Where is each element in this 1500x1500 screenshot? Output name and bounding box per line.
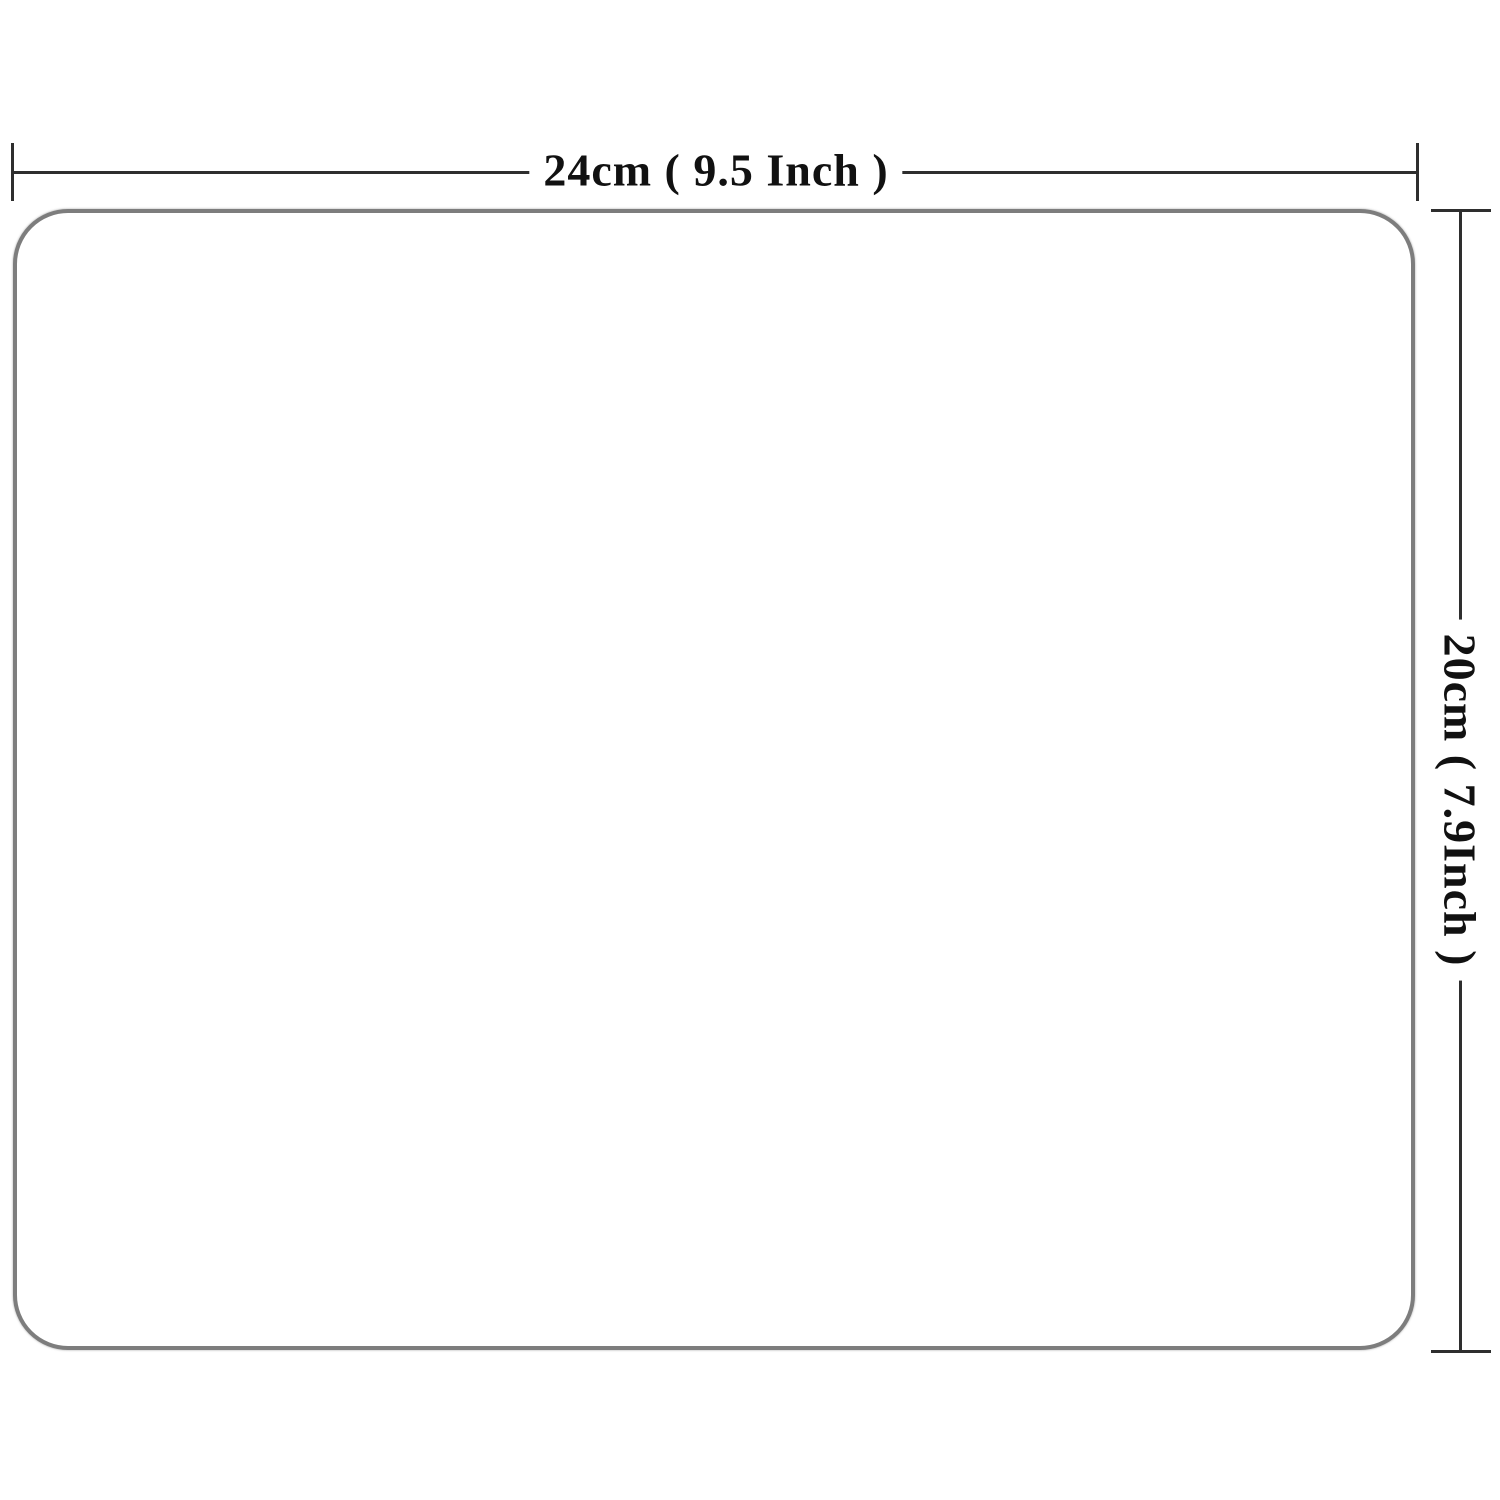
height-dimension-label: 20cm ( 7.9Inch ) [1434,620,1487,981]
dimension-diagram: 24cm ( 9.5 Inch ) 20cm ( 7.9Inch ) [0,0,1500,1500]
height-dimension-bottom-tick [1431,1350,1491,1353]
height-dimension-top-tick [1431,209,1491,212]
width-dimension-label: 24cm ( 9.5 Inch ) [529,143,902,196]
width-dimension-left-tick [11,143,14,201]
product-outline [13,209,1415,1350]
width-dimension-right-tick [1416,143,1419,201]
